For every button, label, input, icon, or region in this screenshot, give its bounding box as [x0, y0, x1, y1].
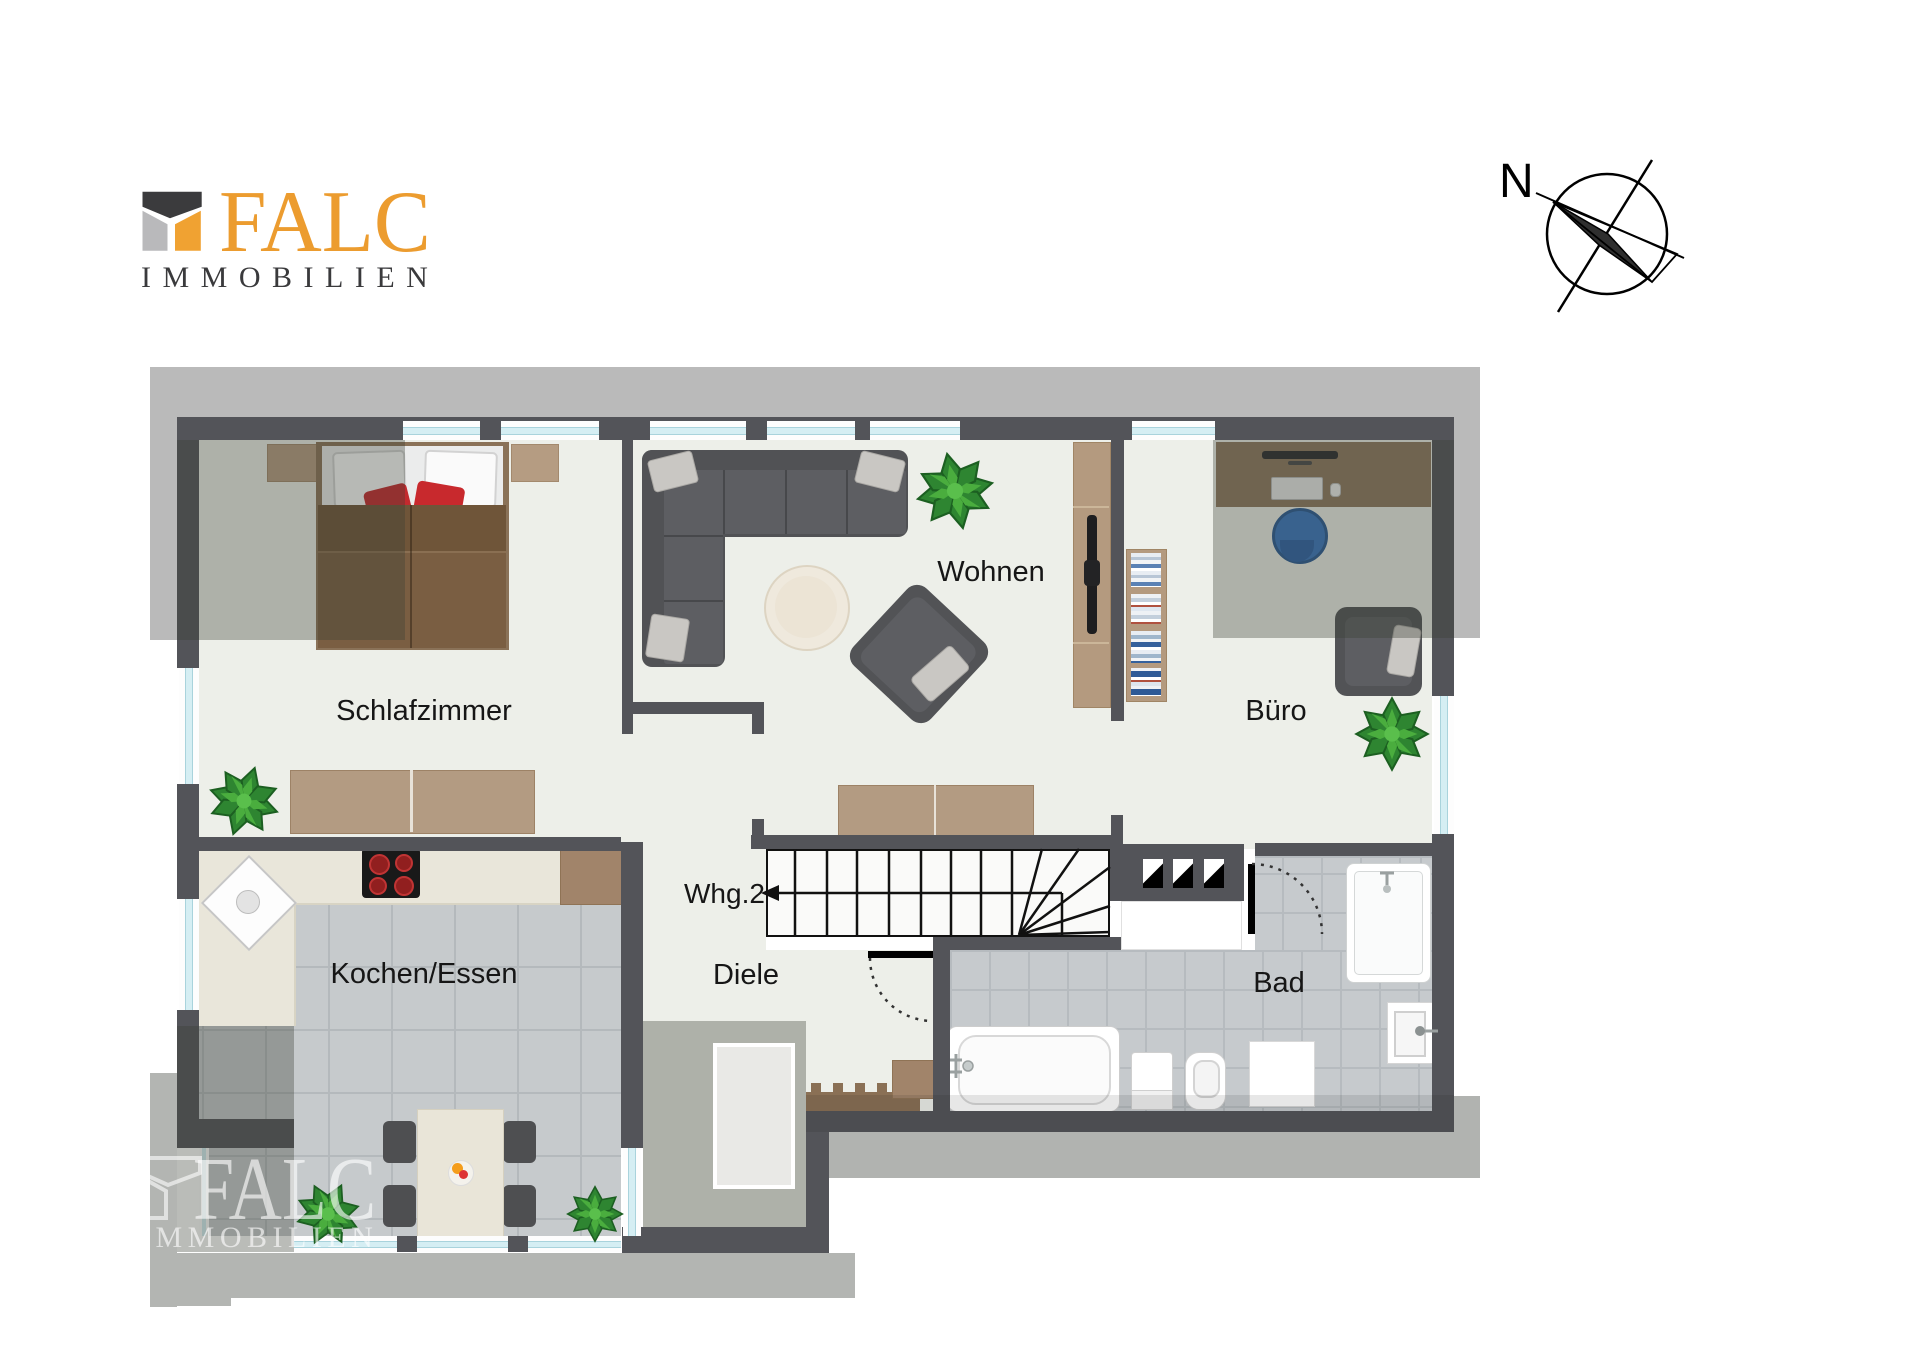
svg-text:N: N: [1499, 155, 1534, 208]
